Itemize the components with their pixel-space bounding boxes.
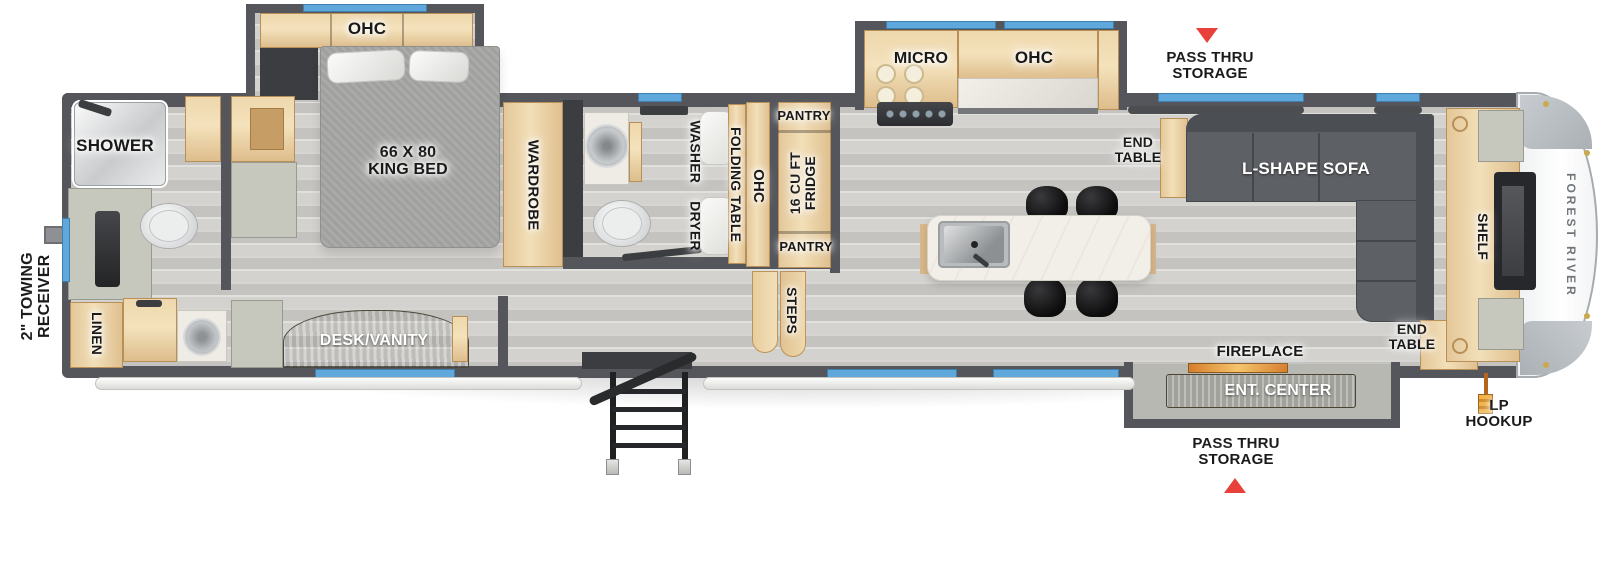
rear-closet-bath2: [185, 96, 221, 162]
wall-bedroom-hall: [498, 296, 508, 369]
burner-1: [878, 66, 894, 82]
valance-left: [1128, 106, 1304, 114]
wall-bath-bedroom: [221, 93, 231, 290]
cap-screw-2: [1584, 150, 1590, 156]
entry-ladder-rail-right: [682, 372, 688, 464]
rear-bath-faucet: [136, 300, 162, 307]
rv-floorplan: 2" TOWING RECEIVER SHOWER LINEN OHC 66 X…: [0, 0, 1600, 568]
pantry-seam-bottom: [778, 231, 831, 234]
sofa-back-top: [1186, 114, 1434, 132]
sofa-seam-4: [1356, 280, 1416, 282]
wall-midbath-left: [563, 100, 583, 268]
bedroom-closet-shelf: [250, 108, 284, 150]
running-board-right: [703, 377, 1135, 390]
end-table-top: [1160, 118, 1188, 198]
cooktop-burners: [884, 110, 946, 118]
window-left-wall: [62, 218, 70, 282]
entry-ladder-rung-2: [612, 407, 686, 412]
entcenter-slide-wall-bottom: [1124, 419, 1400, 428]
kitchen-slide-window-right: [1004, 21, 1114, 29]
rear-bath-counter: [123, 298, 177, 362]
bedroom-dresser: [231, 162, 297, 238]
towing-receiver: [44, 226, 64, 244]
entry-ladder-foot-left: [607, 460, 618, 474]
island-sink-drain: [971, 241, 978, 248]
cap-screw-1: [1543, 101, 1549, 107]
pass-thru-top-arrow: [1196, 28, 1218, 43]
kitchen-end-cabinet: [1098, 30, 1119, 110]
bedroom-nightstand: [260, 48, 318, 100]
midbath-drawers: [629, 122, 642, 182]
cap-screw-4: [1584, 313, 1590, 319]
valance-right: [1374, 106, 1422, 114]
midbath-sink: [587, 126, 627, 166]
rear-vanity-mirror: [95, 211, 120, 287]
chair-bottom-2: [1076, 277, 1118, 317]
front-tv-screen: [1502, 186, 1524, 276]
front-cabinet-bottom: [1478, 298, 1524, 350]
bedroom-corner-cabinet: [231, 300, 283, 368]
front-cabinet-top: [1478, 110, 1524, 162]
window-top-living2: [1376, 93, 1420, 102]
cap-screw-3: [1543, 362, 1549, 368]
kitchen-counter: [958, 78, 1098, 110]
pillow-right: [410, 51, 469, 82]
rear-bath-sink: [185, 320, 219, 354]
shelf-screw-top: [1452, 116, 1468, 132]
front-cap-band-top: [1520, 95, 1592, 149]
kitchen-slide-window-left: [886, 21, 996, 29]
rear-toilet-seat: [150, 211, 188, 241]
chair-bottom-1: [1024, 277, 1066, 317]
window-top-living: [1158, 93, 1304, 102]
bedroom-slide-window: [303, 4, 427, 12]
pillow-left: [327, 50, 404, 83]
pass-thru-bottom-arrow: [1224, 478, 1246, 493]
entry-ladder-foot-right: [679, 460, 690, 474]
window-top-bath: [638, 93, 682, 102]
kitchen-counter-edge: [958, 108, 1098, 114]
midbath-shelf: [640, 106, 688, 115]
sofa-back-right: [1416, 130, 1434, 320]
lp-hookup-line: [1484, 373, 1488, 397]
burner-2: [906, 66, 922, 82]
pantry-seam-top: [778, 130, 831, 133]
desk-edge: [452, 316, 468, 362]
running-board-left: [95, 377, 582, 390]
bedroom-ohc-seam1: [330, 14, 332, 47]
sofa-seam-3: [1356, 240, 1416, 242]
step-1: [752, 271, 778, 353]
bedroom-ohc-seam2: [402, 14, 404, 47]
bedroom-slide-wall-left: [246, 4, 255, 103]
fireplace-insert: [1188, 363, 1288, 373]
entry-ladder-rung-4: [612, 443, 686, 448]
entry-ladder-rung-3: [612, 425, 686, 430]
wall-midbath-right-col: [769, 100, 778, 268]
shelf-screw-bottom: [1452, 338, 1468, 354]
midbath-toilet-seat: [603, 208, 641, 239]
front-cap-band-bottom: [1520, 321, 1592, 375]
